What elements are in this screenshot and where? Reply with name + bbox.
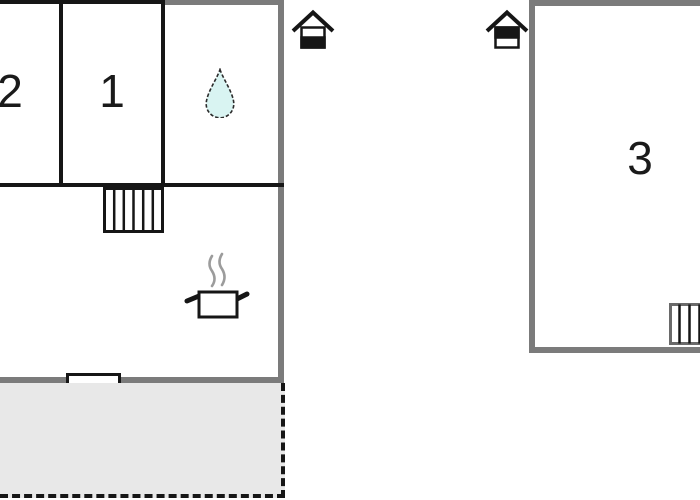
floor-plan-canvas: 2 1: [0, 0, 700, 500]
entrance-icon-main: [291, 8, 335, 52]
steam-line-2: [220, 254, 225, 285]
water-drop-icon: [205, 68, 235, 118]
room-2-label: 2: [0, 68, 23, 114]
building-left: 2 1: [0, 0, 284, 383]
wall-divider-room1-bathroom: [161, 0, 165, 187]
staircase-icon-main: [103, 187, 164, 233]
steam-line-1: [210, 256, 215, 286]
wall-top-rooms: [0, 0, 165, 4]
wall-right-exterior: [278, 0, 284, 383]
wall-top-exterior: [163, 0, 284, 5]
cooking-pot-icon: [184, 252, 250, 320]
entrance-icon-annex: [485, 8, 529, 52]
room-1-label: 1: [99, 68, 125, 114]
wall-divider-room2-room1: [59, 0, 63, 187]
annex-wall-top: [529, 0, 700, 6]
building-right: [529, 0, 700, 353]
staircase-icon-annex: [669, 303, 700, 345]
room-3: [535, 6, 700, 347]
annex-wall-bottom: [529, 347, 700, 353]
terrace-area: [0, 383, 285, 498]
annex-wall-left: [529, 0, 535, 353]
room-3-label: 3: [627, 135, 653, 181]
